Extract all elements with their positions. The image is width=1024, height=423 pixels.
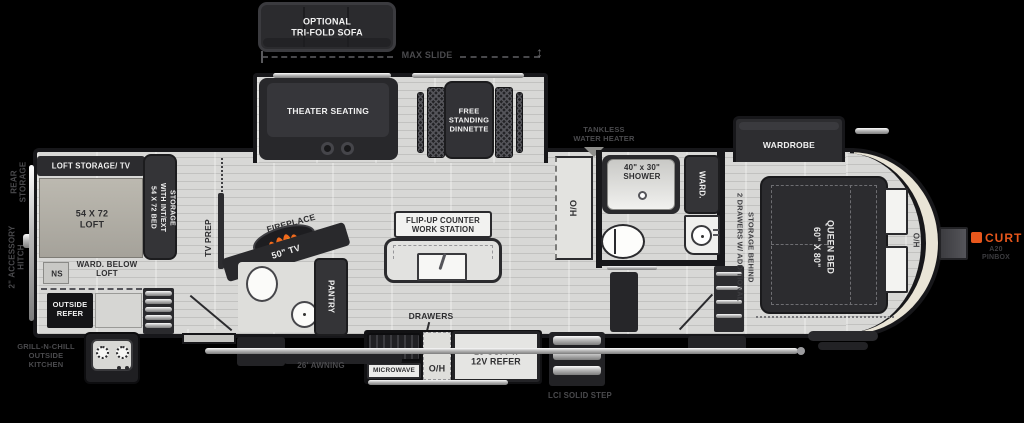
accessory-hitch-label: 2" ACCESSORY HITCH <box>8 216 27 298</box>
sofa-seat-edge <box>263 38 391 47</box>
overhead-label: O/H <box>424 364 450 375</box>
linen-cabinet: H/O <box>555 156 593 260</box>
loft-divider <box>41 288 142 290</box>
kitchen-sink-oval <box>246 266 278 302</box>
slide-latch <box>855 128 889 134</box>
hall-cabinet <box>610 272 638 332</box>
bedroom-drawer-storage-label: 2 DRAWERS W/ ADDITIONAL STORAGE BEHIND <box>734 180 757 314</box>
outside-kitchen-label: GRILL-N-CHILL OUTSIDE KITCHEN <box>8 343 84 370</box>
burner-icon <box>96 346 109 359</box>
burner-icon <box>116 346 129 359</box>
island-sink <box>417 253 467 281</box>
ns-label: NS <box>46 269 68 278</box>
drawers-label: DRAWERS <box>404 311 458 321</box>
loft-nightstand: NS <box>43 262 69 284</box>
galley-bottom-rail <box>368 380 508 385</box>
knob-icon <box>125 366 129 370</box>
max-slide-line <box>262 56 393 58</box>
rear-storage-label: REAR STORAGE <box>10 147 29 217</box>
island-label: FLIP-UP COUNTER WORK STATION <box>395 216 491 234</box>
pinbox-model-label: A20 PINBOX <box>969 246 1023 263</box>
wardrobe-slide: WARDROBE <box>733 116 845 162</box>
toilet <box>601 224 645 259</box>
max-slide-tick <box>261 51 263 63</box>
bath-vanity <box>684 215 720 255</box>
loft-bed-storage-label: 54 X 72 BED WITH INT/EXT STORAGE <box>148 160 176 256</box>
tank <box>808 331 878 341</box>
loft-bed-storage-cabinet: 54 X 72 BED WITH INT/EXT STORAGE <box>143 154 177 260</box>
dinette-bench <box>516 92 523 153</box>
loft-storage-cabinet: LOFT STORAGE/ TV <box>37 156 145 176</box>
dinette-bench <box>417 92 424 153</box>
tv-prep-line <box>221 158 223 192</box>
refrigerator: 16 CU. FT. 12V REFER <box>452 331 540 382</box>
shower-label: 40" x 30" SHOWER <box>610 163 674 182</box>
rear-ladder <box>29 165 34 321</box>
ward-below-loft-label: WARD. BELOW LOFT <box>71 260 143 279</box>
dinette-label: FREE STANDING DINNETTE <box>439 108 499 135</box>
queen-bed-label: 60" X 80" QUEEN BED <box>810 212 836 282</box>
kitchen-island <box>384 238 502 283</box>
curt-logo-icon <box>971 232 982 243</box>
loft-size-label: 54 X 72 LOFT <box>57 208 127 229</box>
bath-wardrobe: WARD. <box>684 155 720 214</box>
shower-pan: 40" x 30" SHOWER <box>607 159 675 210</box>
bath-wardrobe-label: WARD. <box>697 161 706 209</box>
microwave: MICROWAVE <box>367 363 421 379</box>
outside-refer-counter <box>95 293 142 328</box>
outside-refer: OUTSIDE REFER <box>47 293 93 328</box>
bath-sink <box>691 225 712 246</box>
tv-prep-label: TV PREP <box>203 209 213 267</box>
awning-rod-end <box>797 347 805 355</box>
rv-floorplan-diagram: REAR STORAGE 2" ACCESSORY HITCH OPTIONAL… <box>0 0 1024 423</box>
slide-rail <box>412 73 524 78</box>
faucet-icon <box>438 253 446 270</box>
microwave-label: MICROWAVE <box>368 367 420 375</box>
curt-logo: CURT <box>971 231 1023 245</box>
dinette-table: FREE STANDING DINNETTE <box>444 81 494 159</box>
pillow-line <box>850 185 851 305</box>
pantry-label: PANTRY <box>326 264 335 330</box>
optional-sofa: OPTIONAL TRI-FOLD SOFA <box>258 2 396 52</box>
linen-label: H/O <box>569 188 580 228</box>
faucet-icon <box>713 229 719 231</box>
theater-seating: THEATER SEATING <box>259 78 398 160</box>
outside-kitchen-grill <box>84 332 140 384</box>
cupholder-icon <box>341 142 354 155</box>
loft-stairs <box>143 288 174 334</box>
faucet-icon <box>713 234 719 236</box>
loft-storage-label: LOFT STORAGE/ TV <box>38 161 144 170</box>
max-slide-label: MAX SLIDE <box>395 50 459 61</box>
knob-icon <box>117 366 121 370</box>
island-label-box: FLIP-UP COUNTER WORK STATION <box>394 211 492 238</box>
max-slide-arrow-icon: ↕ <box>536 44 543 60</box>
awning-label: 26' AWNING <box>288 361 354 370</box>
shower: 40" x 30" SHOWER <box>602 155 680 214</box>
tank <box>818 342 868 350</box>
overhead-cabinet: O/H <box>423 332 451 380</box>
shower-drain-icon <box>638 191 647 200</box>
curt-brand-label: CURT <box>985 231 1022 245</box>
awning-rod <box>205 348 798 354</box>
bath-threshold <box>607 266 657 270</box>
queen-bed: 60" X 80" QUEEN BED <box>760 176 888 314</box>
entry-threshold <box>182 333 236 344</box>
nightstand <box>884 188 908 235</box>
loft-bed: 54 X 72 LOFT <box>39 178 143 258</box>
entry-steps <box>549 332 605 386</box>
bed-foot-seam <box>756 316 894 318</box>
solid-step-label: LCI SOLID STEP <box>538 391 622 400</box>
wardrobe-label: WARDROBE <box>739 140 839 150</box>
optional-sofa-label: OPTIONAL TRI-FOLD SOFA <box>267 16 387 37</box>
front-overhead-label: H/O <box>912 225 921 255</box>
cupholder-icon <box>321 142 334 155</box>
pantry-cabinet: PANTRY <box>314 258 348 336</box>
tankless-water-heater-label: TANKLESS WATER HEATER <box>545 126 663 144</box>
pin-box <box>939 227 968 260</box>
outside-refer-label: OUTSIDE REFER <box>48 301 92 319</box>
nightstand <box>884 246 908 293</box>
max-slide-line <box>460 56 540 58</box>
theater-seating-label: THEATER SEATING <box>263 106 393 116</box>
